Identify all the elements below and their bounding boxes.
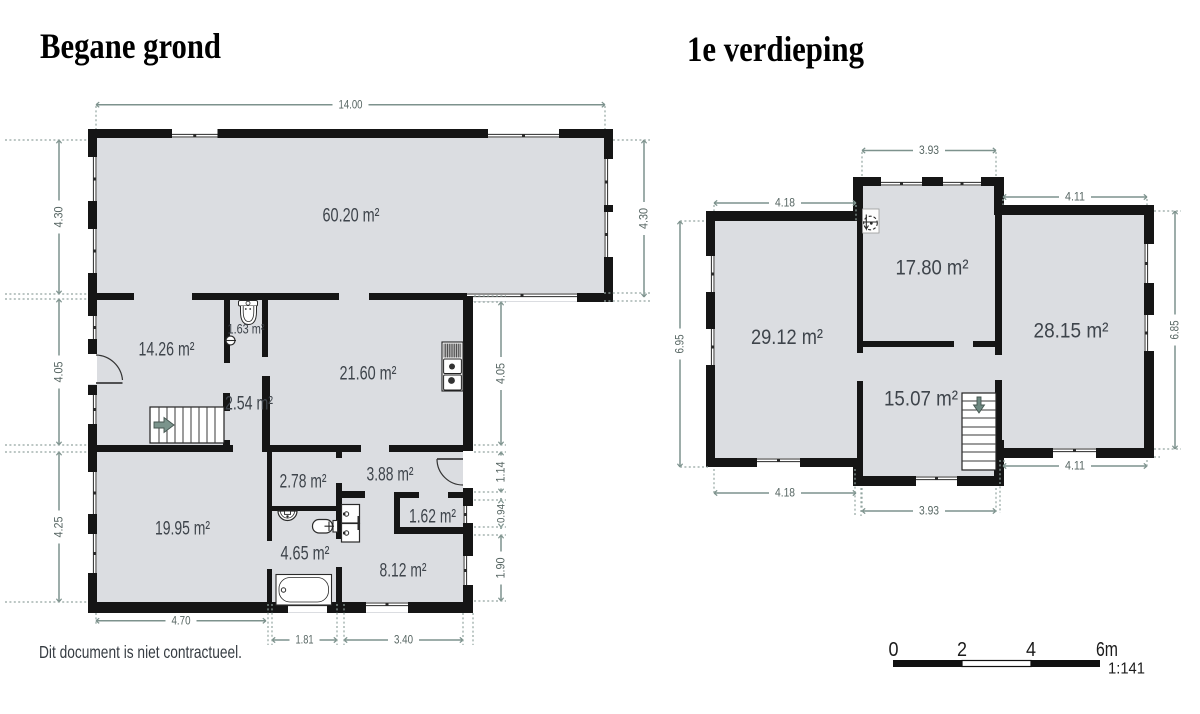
svg-text:15.07 m²: 15.07 m² <box>884 388 958 411</box>
svg-text:Begane grond: Begane grond <box>40 26 221 66</box>
svg-text:0.94: 0.94 <box>496 504 508 523</box>
svg-text:29.12 m²: 29.12 m² <box>751 326 823 349</box>
svg-text:17.80 m²: 17.80 m² <box>896 257 969 280</box>
svg-text:21.60 m²: 21.60 m² <box>340 364 397 385</box>
svg-text:4.25: 4.25 <box>52 516 66 537</box>
svg-text:1.14: 1.14 <box>494 461 508 482</box>
svg-text:1.90: 1.90 <box>494 557 508 578</box>
svg-text:3.88 m²: 3.88 m² <box>367 465 414 486</box>
svg-text:3.93: 3.93 <box>919 143 939 157</box>
svg-text:4.65 m²: 4.65 m² <box>281 544 330 565</box>
svg-text:4.18: 4.18 <box>775 486 795 500</box>
svg-text:8.12 m²: 8.12 m² <box>380 561 427 582</box>
svg-text:1.63 m²: 1.63 m² <box>228 321 265 337</box>
svg-text:1e verdieping: 1e verdieping <box>687 29 864 69</box>
svg-text:2: 2 <box>957 639 967 661</box>
svg-text:6.95: 6.95 <box>673 334 687 353</box>
svg-text:28.15 m²: 28.15 m² <box>1034 320 1109 343</box>
svg-text:3.93: 3.93 <box>919 504 939 518</box>
svg-text:4.30: 4.30 <box>52 206 66 227</box>
svg-text:6m: 6m <box>1096 639 1118 661</box>
svg-text:19.95 m²: 19.95 m² <box>155 519 210 540</box>
svg-text:4.05: 4.05 <box>52 361 66 382</box>
svg-text:1.81: 1.81 <box>296 633 314 647</box>
svg-text:4.18: 4.18 <box>775 196 795 210</box>
svg-text:3.40: 3.40 <box>394 633 413 647</box>
svg-text:1:141: 1:141 <box>1108 661 1145 678</box>
svg-text:4.30: 4.30 <box>637 208 651 229</box>
svg-text:4.11: 4.11 <box>1065 190 1085 204</box>
svg-text:14.00: 14.00 <box>339 97 363 111</box>
svg-text:4.70: 4.70 <box>172 613 191 627</box>
svg-text:2.78 m²: 2.78 m² <box>280 472 327 493</box>
svg-text:6.85: 6.85 <box>1168 320 1182 339</box>
svg-text:4.11: 4.11 <box>1065 459 1085 473</box>
svg-text:60.20 m²: 60.20 m² <box>323 206 380 227</box>
svg-text:0: 0 <box>889 639 899 661</box>
svg-text:4: 4 <box>1026 639 1036 661</box>
svg-text:Dit document is niet contractu: Dit document is niet contractueel. <box>39 642 242 662</box>
svg-text:14.26 m²: 14.26 m² <box>139 340 195 361</box>
svg-text:1.62 m²: 1.62 m² <box>409 507 456 528</box>
svg-text:4.05: 4.05 <box>494 363 508 384</box>
svg-text:2.54 m²: 2.54 m² <box>225 394 273 415</box>
